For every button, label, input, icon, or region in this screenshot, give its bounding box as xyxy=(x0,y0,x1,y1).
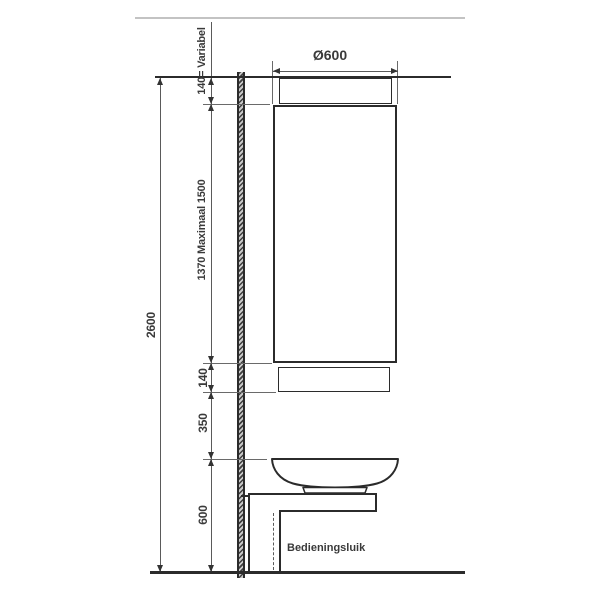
counter-top-line xyxy=(248,493,377,495)
counter-panel-left xyxy=(248,493,250,572)
counter-slab-bottom xyxy=(279,510,377,512)
dim-arrow xyxy=(157,78,163,85)
label-access-panel: Bedieningsluik xyxy=(287,542,365,554)
column-body xyxy=(273,105,397,363)
dim-arrow xyxy=(208,392,214,399)
dim-label-basin-clearance: 350 xyxy=(196,413,210,432)
dim-label-lower-gap: 140 xyxy=(196,368,210,387)
dim-arrow xyxy=(273,68,280,74)
dim-arrow xyxy=(208,104,214,111)
dim-label-worktop-height: 600 xyxy=(196,505,210,524)
faint-border-line xyxy=(135,17,465,19)
dim-label-total-height: 2600 xyxy=(144,312,158,338)
counter-panel-right xyxy=(279,510,281,572)
counter-wall-connector xyxy=(241,495,248,497)
washbasin-bowl xyxy=(272,459,398,488)
column-top-spacer xyxy=(279,78,392,104)
dim-label-unit-height: 1370 Maximaal 1500 xyxy=(196,180,208,281)
dim-line-diameter xyxy=(273,71,398,72)
dim-arrow xyxy=(157,565,163,572)
dim-arrow xyxy=(208,78,214,85)
dim-arrow xyxy=(208,356,214,363)
floor-line xyxy=(150,571,465,574)
washbasin xyxy=(270,457,400,495)
dim-arrow xyxy=(391,68,398,74)
dim-arrow xyxy=(208,97,214,104)
access-hatch-hidden-line xyxy=(273,513,274,570)
dim-arrow xyxy=(208,459,214,466)
dim-label-diameter: Ø600 xyxy=(313,47,347,63)
wall xyxy=(237,72,245,578)
dim-label-ceiling-gap: 140= Variabel xyxy=(196,27,208,94)
dim-arrow xyxy=(208,565,214,572)
dim-arrow xyxy=(208,452,214,459)
dim-line-total-height xyxy=(160,78,161,572)
technical-drawing: 2600 140= Variabel 1370 Maximaal 1500 14… xyxy=(0,0,600,600)
column-bottom-spacer xyxy=(278,367,390,392)
